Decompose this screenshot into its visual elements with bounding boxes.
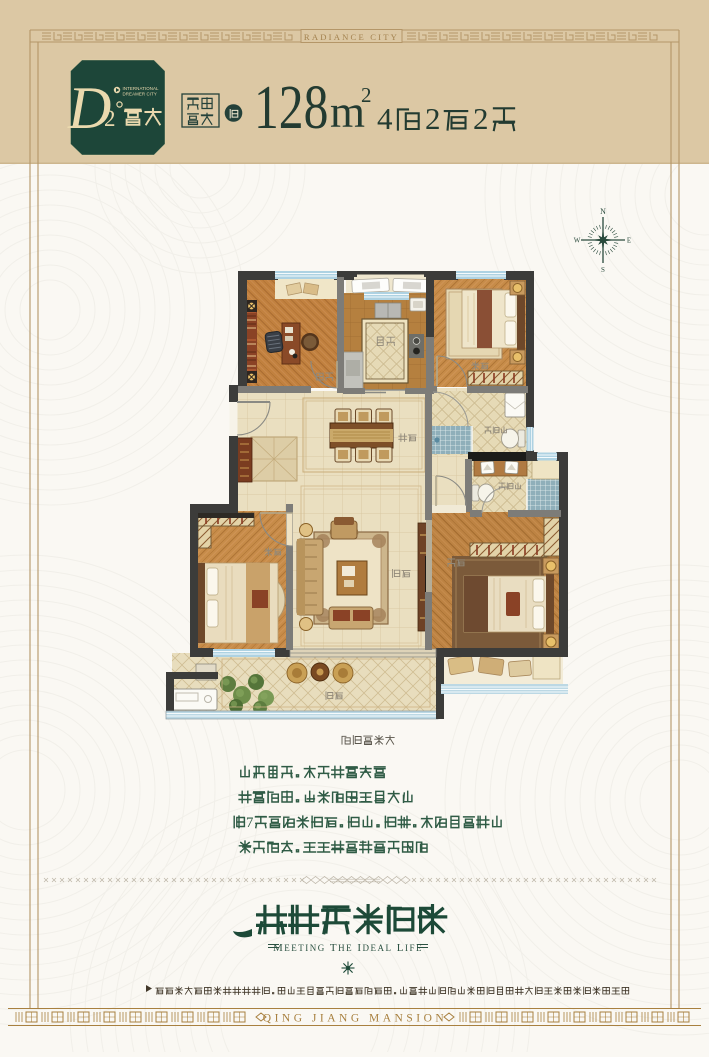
svg-text:m: m bbox=[330, 87, 365, 137]
svg-text:2: 2 bbox=[361, 83, 372, 107]
svg-text:4: 4 bbox=[377, 101, 393, 136]
svg-text:S: S bbox=[601, 266, 605, 274]
svg-text:128: 128 bbox=[254, 74, 328, 142]
svg-text:QING JIANG MANSION: QING JIANG MANSION bbox=[263, 1013, 447, 1025]
svg-text:MEETING THE IDEAL LIFE: MEETING THE IDEAL LIFE bbox=[273, 942, 423, 954]
svg-text:E: E bbox=[627, 237, 631, 245]
svg-text:2: 2 bbox=[473, 101, 489, 136]
svg-text:INTERNATIONAL: INTERNATIONAL bbox=[123, 86, 160, 91]
svg-text:W: W bbox=[574, 237, 581, 245]
svg-text:2: 2 bbox=[104, 106, 116, 131]
svg-text:N: N bbox=[600, 207, 606, 216]
svg-text:DREAMER CITY: DREAMER CITY bbox=[123, 92, 157, 97]
svg-text:RADIANCE CITY: RADIANCE CITY bbox=[304, 32, 399, 42]
svg-text:7: 7 bbox=[246, 815, 253, 831]
svg-text:2: 2 bbox=[425, 101, 441, 136]
